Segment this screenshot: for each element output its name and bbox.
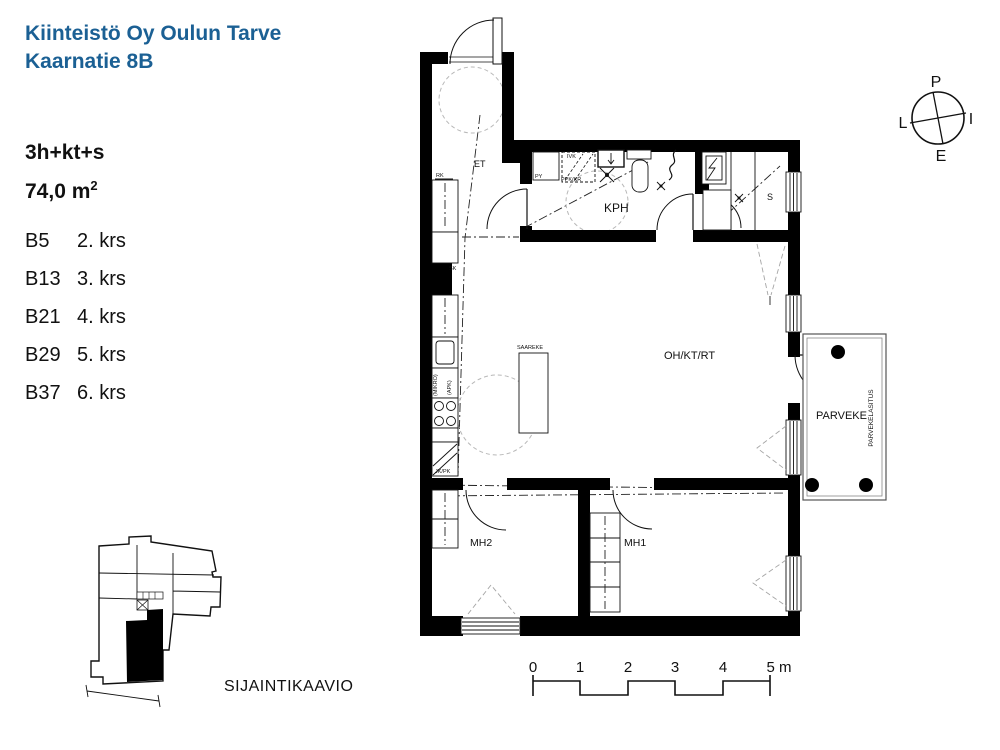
building-stairs <box>137 592 163 599</box>
compass-west: L <box>899 115 908 132</box>
compass: P I E L <box>899 74 974 165</box>
scale-3: 3 <box>671 659 679 676</box>
balcony-post <box>805 478 819 492</box>
wall-bedroom-north-b <box>507 478 610 490</box>
window-living-2 <box>786 420 801 475</box>
floor-drain-bath <box>657 182 665 190</box>
dimension-bracket <box>86 685 160 707</box>
kitchen-zone-line <box>458 115 480 476</box>
duct-dashes <box>757 244 785 295</box>
wall-west <box>420 52 432 636</box>
mh1-wardrobe <box>590 513 620 612</box>
floor-plan-page: Kiinteistö Oy Oulun Tarve Kaarnatie 8B 3… <box>0 0 1000 750</box>
window-opening-mark-living <box>757 426 786 470</box>
wall-bedroom-divider <box>578 490 590 616</box>
rk-label: RK <box>436 173 444 179</box>
scale-2: 2 <box>624 659 632 676</box>
wall-bedroom-north-a <box>432 478 463 490</box>
shower-hose <box>669 150 676 180</box>
scale-bar: 0 1 2 3 4 5 m <box>529 659 792 696</box>
window-opening-mark-mh1 <box>753 560 786 606</box>
floor-plan-drawing: RK SK (MIKRO) (APK) <box>0 0 1000 750</box>
bathroom-label: KPH <box>604 201 629 215</box>
scale-5m: 5 m <box>766 659 791 676</box>
bedroom2-label: MH2 <box>470 537 492 549</box>
apk-label: (APK) <box>447 380 453 395</box>
wall-bath-west-upper <box>520 152 532 184</box>
bedroom1-label: MH1 <box>624 537 646 549</box>
stove <box>432 398 458 428</box>
window-bedroom2 <box>461 618 520 634</box>
compass-south: E <box>936 148 947 165</box>
balcony-glazing-label: PARVEKELASITUS <box>868 389 875 447</box>
balcony-label: PARVEKE <box>816 410 867 422</box>
wall-east-5 <box>788 475 800 556</box>
window-bedroom1 <box>786 556 801 611</box>
wall-entry-top-left <box>420 52 448 64</box>
fridge-freezer: JK/PK <box>432 442 458 476</box>
compass-north: P <box>931 74 942 91</box>
laundry-spot: IVK PPK/KR <box>561 152 595 183</box>
mikro-label: (MIKRO) <box>433 374 439 396</box>
entrance-door <box>449 18 503 64</box>
py-label: PY <box>535 174 543 180</box>
entry-turning-circle <box>439 67 505 133</box>
ppk-kr-label: PPK/KR <box>561 177 581 183</box>
kitchen-fixtures: RK SK (MIKRO) (APK) <box>432 173 548 476</box>
scale-bar-line <box>533 675 770 696</box>
location-diagram <box>86 536 221 707</box>
sink <box>432 337 458 368</box>
wall-east-4 <box>788 403 800 420</box>
mh2-wardrobe <box>432 490 458 548</box>
bathroom-door <box>487 189 527 229</box>
elevator-box <box>137 600 148 610</box>
balcony-post <box>831 345 845 359</box>
cabinet <box>432 232 458 263</box>
wall-entry-east <box>502 52 514 148</box>
cabinet <box>432 428 458 442</box>
window-living-1 <box>786 295 801 332</box>
ivk-label: IVK <box>567 154 576 160</box>
balcony-post <box>859 478 873 492</box>
bathroom-inner-door <box>657 194 693 230</box>
wall-east-2 <box>788 212 800 295</box>
sauna-label: S <box>767 192 773 202</box>
entry-label: ET <box>474 159 486 169</box>
wall-east-3 <box>788 332 800 357</box>
floor-drain-sauna <box>735 194 743 202</box>
sauna-lower-bench <box>703 190 731 230</box>
wall-bedroom-north-c <box>654 478 788 490</box>
microwave-cabinet: (MIKRO) (APK) <box>432 368 458 398</box>
section-line-b <box>434 493 786 496</box>
window-opening-mark-mh2 <box>468 585 515 614</box>
kitchen-island: SAAREKE <box>517 345 548 433</box>
wall-east-1 <box>788 140 800 172</box>
wall-south-right <box>520 616 800 636</box>
living-kitchen-label: OH/KT/RT <box>664 350 715 362</box>
bedroom-wardrobes <box>432 490 620 612</box>
wall-bath-south-right <box>693 230 800 242</box>
window-sauna <box>786 172 801 212</box>
wall-bath-south-left <box>520 230 656 242</box>
sk-label: SK <box>449 266 457 272</box>
scale-1: 1 <box>576 659 584 676</box>
compass-east: I <box>969 111 973 128</box>
island-label: SAAREKE <box>517 345 543 351</box>
scale-0: 0 <box>529 659 537 676</box>
scale-4: 4 <box>719 659 727 676</box>
balcony: PARVEKE PARVEKELASITUS <box>803 334 886 500</box>
jkpk-label: JK/PK <box>435 469 451 475</box>
wall-south-left <box>420 616 463 636</box>
bathroom-fixtures: PY IVK PPK/KR <box>533 150 676 192</box>
sauna-fixtures <box>702 152 755 230</box>
sauna-benches <box>731 152 755 230</box>
sauna-heater <box>702 152 726 184</box>
